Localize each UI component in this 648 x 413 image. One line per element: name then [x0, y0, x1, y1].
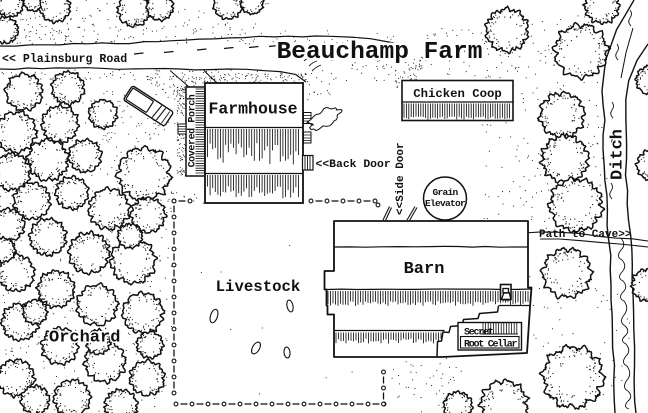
- svg-text:Elevator: Elevator: [425, 198, 466, 209]
- svg-text:Livestock: Livestock: [216, 278, 301, 296]
- svg-text:Grain: Grain: [432, 187, 458, 198]
- svg-text:Covered Porch: Covered Porch: [187, 94, 199, 167]
- svg-text:Barn: Barn: [404, 260, 445, 279]
- svg-text:Root Cellar: Root Cellar: [464, 339, 518, 351]
- svg-text:<<Back Door: <<Back Door: [316, 159, 391, 171]
- svg-text:Ditch: Ditch: [609, 129, 628, 180]
- svg-text:<< Plainsburg Road: << Plainsburg Road: [2, 53, 127, 66]
- svg-text:Orchard: Orchard: [49, 329, 120, 348]
- svg-text:Beauchamp Farm: Beauchamp Farm: [277, 39, 483, 66]
- svg-text:Farmhouse: Farmhouse: [208, 100, 297, 119]
- svg-text:<<Side Door: <<Side Door: [395, 142, 407, 215]
- svg-text:Path to Cave>>: Path to Cave>>: [539, 229, 632, 241]
- svg-text:Chicken Coop: Chicken Coop: [413, 87, 502, 101]
